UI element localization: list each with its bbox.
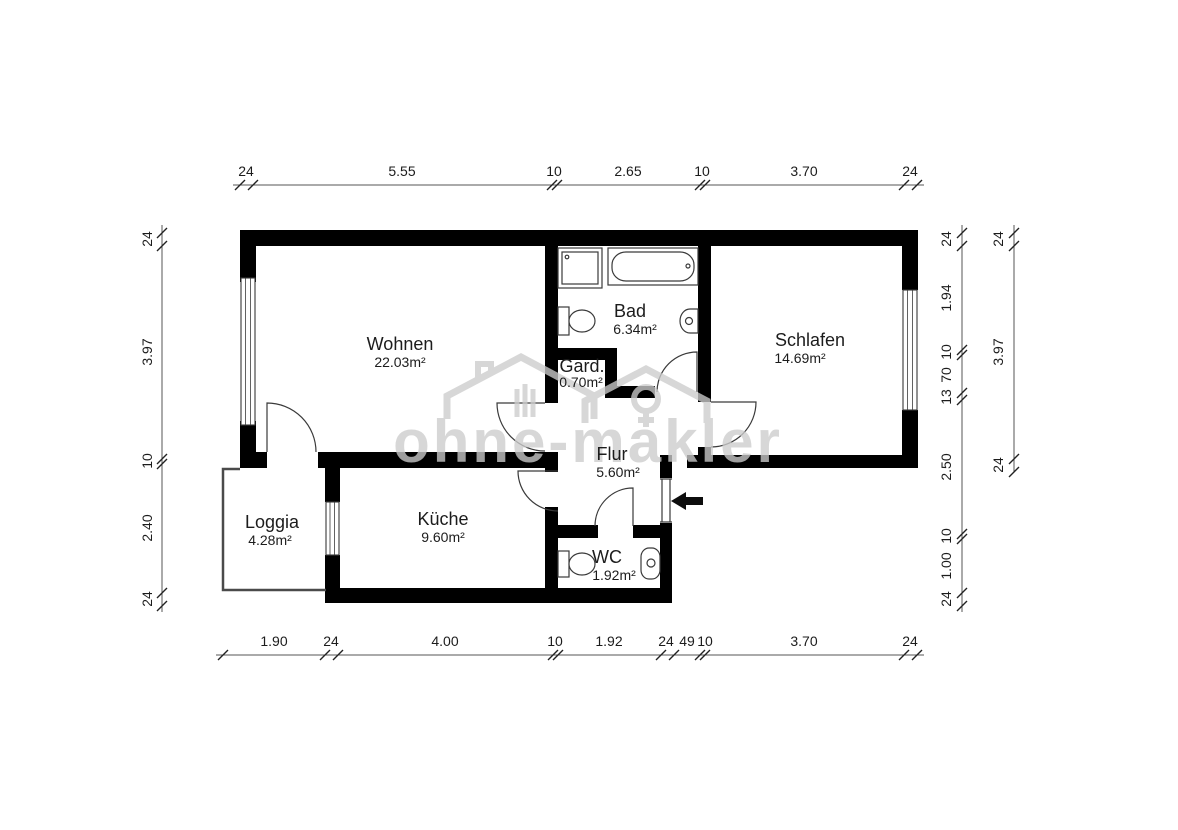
dim-left-4: 24 <box>139 591 155 607</box>
dim-top-4: 10 <box>694 163 710 179</box>
dim-top-2: 10 <box>546 163 562 179</box>
floorplan-page: ohne-makler Wohnen 22.03m² Bad 6.34m² Sc… <box>0 0 1178 830</box>
room-label-wohnen: Wohnen <box>367 334 434 354</box>
wall-right-lower <box>902 410 918 468</box>
wall-top <box>240 230 918 246</box>
wall-kueche-loggia-lower <box>325 555 340 603</box>
sink-bad <box>680 309 698 333</box>
dim-bottom-8: 3.70 <box>790 633 817 649</box>
dim-top-6: 24 <box>902 163 918 179</box>
room-area-kueche: 9.60m² <box>421 529 465 545</box>
floorplan-drawing: ohne-makler Wohnen 22.03m² Bad 6.34m² Sc… <box>0 0 1178 830</box>
wall-wc-top-left <box>545 525 598 538</box>
wall-bottom <box>325 588 672 603</box>
dim-bottom-4: 1.92 <box>595 633 622 649</box>
dim-bottom-7: 10 <box>697 633 713 649</box>
dim-top-3: 2.65 <box>614 163 641 179</box>
room-label-schlafen: Schlafen <box>775 330 845 350</box>
dim-bottom-3: 10 <box>547 633 563 649</box>
room-label-gard: Gard. <box>559 356 604 376</box>
loggia-door <box>267 403 316 452</box>
watermark-text: ohne-makler <box>393 408 783 475</box>
shower <box>558 248 602 288</box>
dim-bottom-0: 1.90 <box>260 633 287 649</box>
bathtub <box>608 248 698 285</box>
dim-top-5: 3.70 <box>790 163 817 179</box>
room-label-loggia: Loggia <box>245 512 300 532</box>
kueche-door <box>518 471 558 511</box>
room-label-wc: WC <box>592 547 622 567</box>
room-area-wohnen: 22.03m² <box>374 354 426 370</box>
room-area-loggia: 4.28m² <box>248 532 292 548</box>
toilet-wc <box>558 551 595 577</box>
entrance-arrow-icon <box>671 492 703 510</box>
sink-wc <box>641 548 660 579</box>
kueche-window <box>326 502 339 555</box>
dim-left-2: 10 <box>139 453 155 469</box>
dim-right-outer-2: 24 <box>990 457 1006 473</box>
room-label-kueche: Küche <box>417 509 468 529</box>
dim-right-inner-1: 1.94 <box>938 284 954 311</box>
dim-left-1: 3.97 <box>139 338 155 365</box>
dim-right-outer-1: 3.97 <box>990 338 1006 365</box>
dim-right-outer-0: 24 <box>990 231 1006 247</box>
room-area-schlafen: 14.69m² <box>774 350 826 366</box>
wc-door <box>595 488 633 526</box>
wall-kueche-loggia-upper <box>325 468 340 502</box>
room-area-bad: 6.34m² <box>613 321 657 337</box>
room-area-wc: 1.92m² <box>592 567 636 583</box>
room-label-flur: Flur <box>597 444 628 464</box>
toilet-bad <box>558 307 595 335</box>
dim-right-inner-4: 13 <box>938 389 954 405</box>
room-area-flur: 5.60m² <box>596 464 640 480</box>
dim-right-inner-7: 1.00 <box>938 552 954 579</box>
wall-wohnen-bottom-left <box>240 452 267 468</box>
dim-right-inner-6: 10 <box>938 528 954 544</box>
dim-right-inner-8: 24 <box>938 591 954 607</box>
dim-right-inner-0: 24 <box>938 231 954 247</box>
dim-top-1: 5.55 <box>388 163 415 179</box>
dim-right-inner-3: 70 <box>938 367 954 383</box>
dim-bottom-1: 24 <box>323 633 339 649</box>
entrance-door-jambs <box>660 479 672 522</box>
wall-right-upper <box>902 246 918 290</box>
schlafen-window <box>903 290 917 410</box>
dim-bottom-5: 24 <box>658 633 674 649</box>
room-label-bad: Bad <box>614 301 646 321</box>
dim-left-0: 24 <box>139 231 155 247</box>
wall-left-upper <box>240 246 256 282</box>
wohnen-window <box>241 278 255 425</box>
dim-left-3: 2.40 <box>139 514 155 541</box>
dim-top-0: 24 <box>238 163 254 179</box>
dim-right-inner-2: 10 <box>938 344 954 360</box>
dim-bottom-6: 49 <box>679 633 695 649</box>
wall-bad-schlafen <box>698 246 711 402</box>
dim-right-inner-5: 2.50 <box>938 453 954 480</box>
dim-bottom-2: 4.00 <box>431 633 458 649</box>
dim-bottom-9: 24 <box>902 633 918 649</box>
room-area-gard: 0.70m² <box>559 374 603 390</box>
